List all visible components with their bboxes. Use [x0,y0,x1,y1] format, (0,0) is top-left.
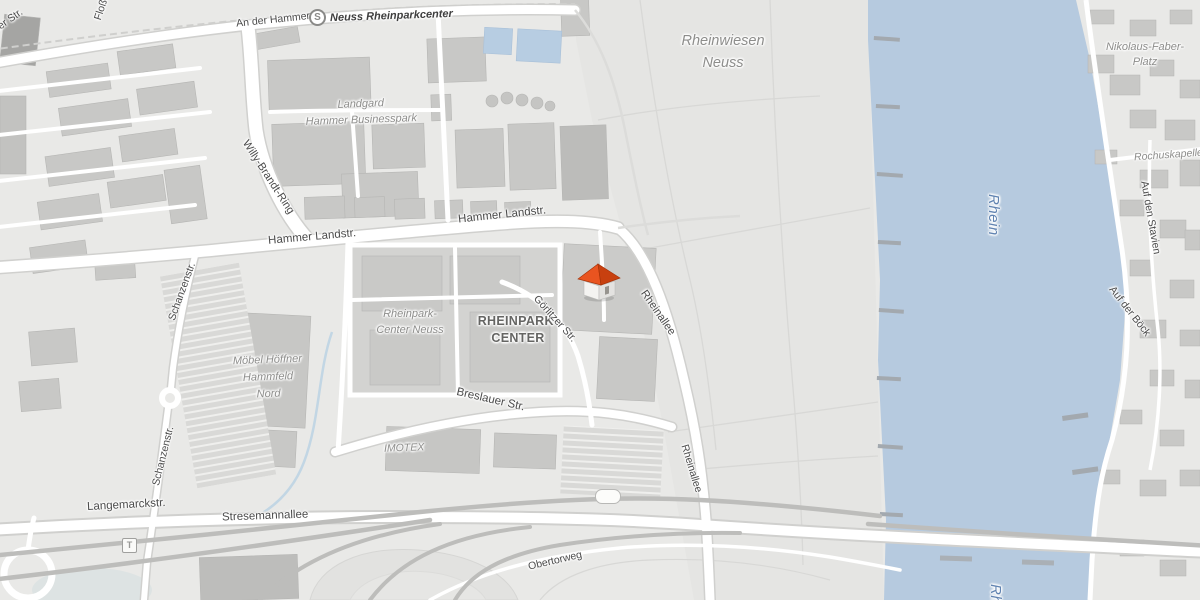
sbahn-station-icon[interactable]: S [309,9,326,26]
map-viewport[interactable]: An der Hammer Br. S Neuss Rheinparkcente… [0,0,1200,600]
poi-label-imotex: IMOTEX [384,441,425,454]
river-rhein [868,0,1126,600]
water-label-rhein-south: Rhein [987,584,1004,600]
area-label-landgard-businesspark: Landgard Hammer Businesspark [285,93,436,130]
motorway-junction-badge [595,489,621,504]
water-label-rhein: Rhein [985,194,1002,236]
area-label-rheinwiesen: Rheinwiesen Neuss [648,30,798,74]
poi-label-rheinpark-center-neuss: Rheinpark- Center Neuss [352,306,468,338]
area-label-nikolaus-faber-platz: Nikolaus-Faber- Platz [1090,40,1200,70]
poi-label-moebel-hoeffner: Möbel Höffner Hammfeld Nord [217,350,319,404]
tram-stop-icon[interactable]: T [122,538,137,553]
location-marker-house-icon[interactable] [574,256,624,302]
